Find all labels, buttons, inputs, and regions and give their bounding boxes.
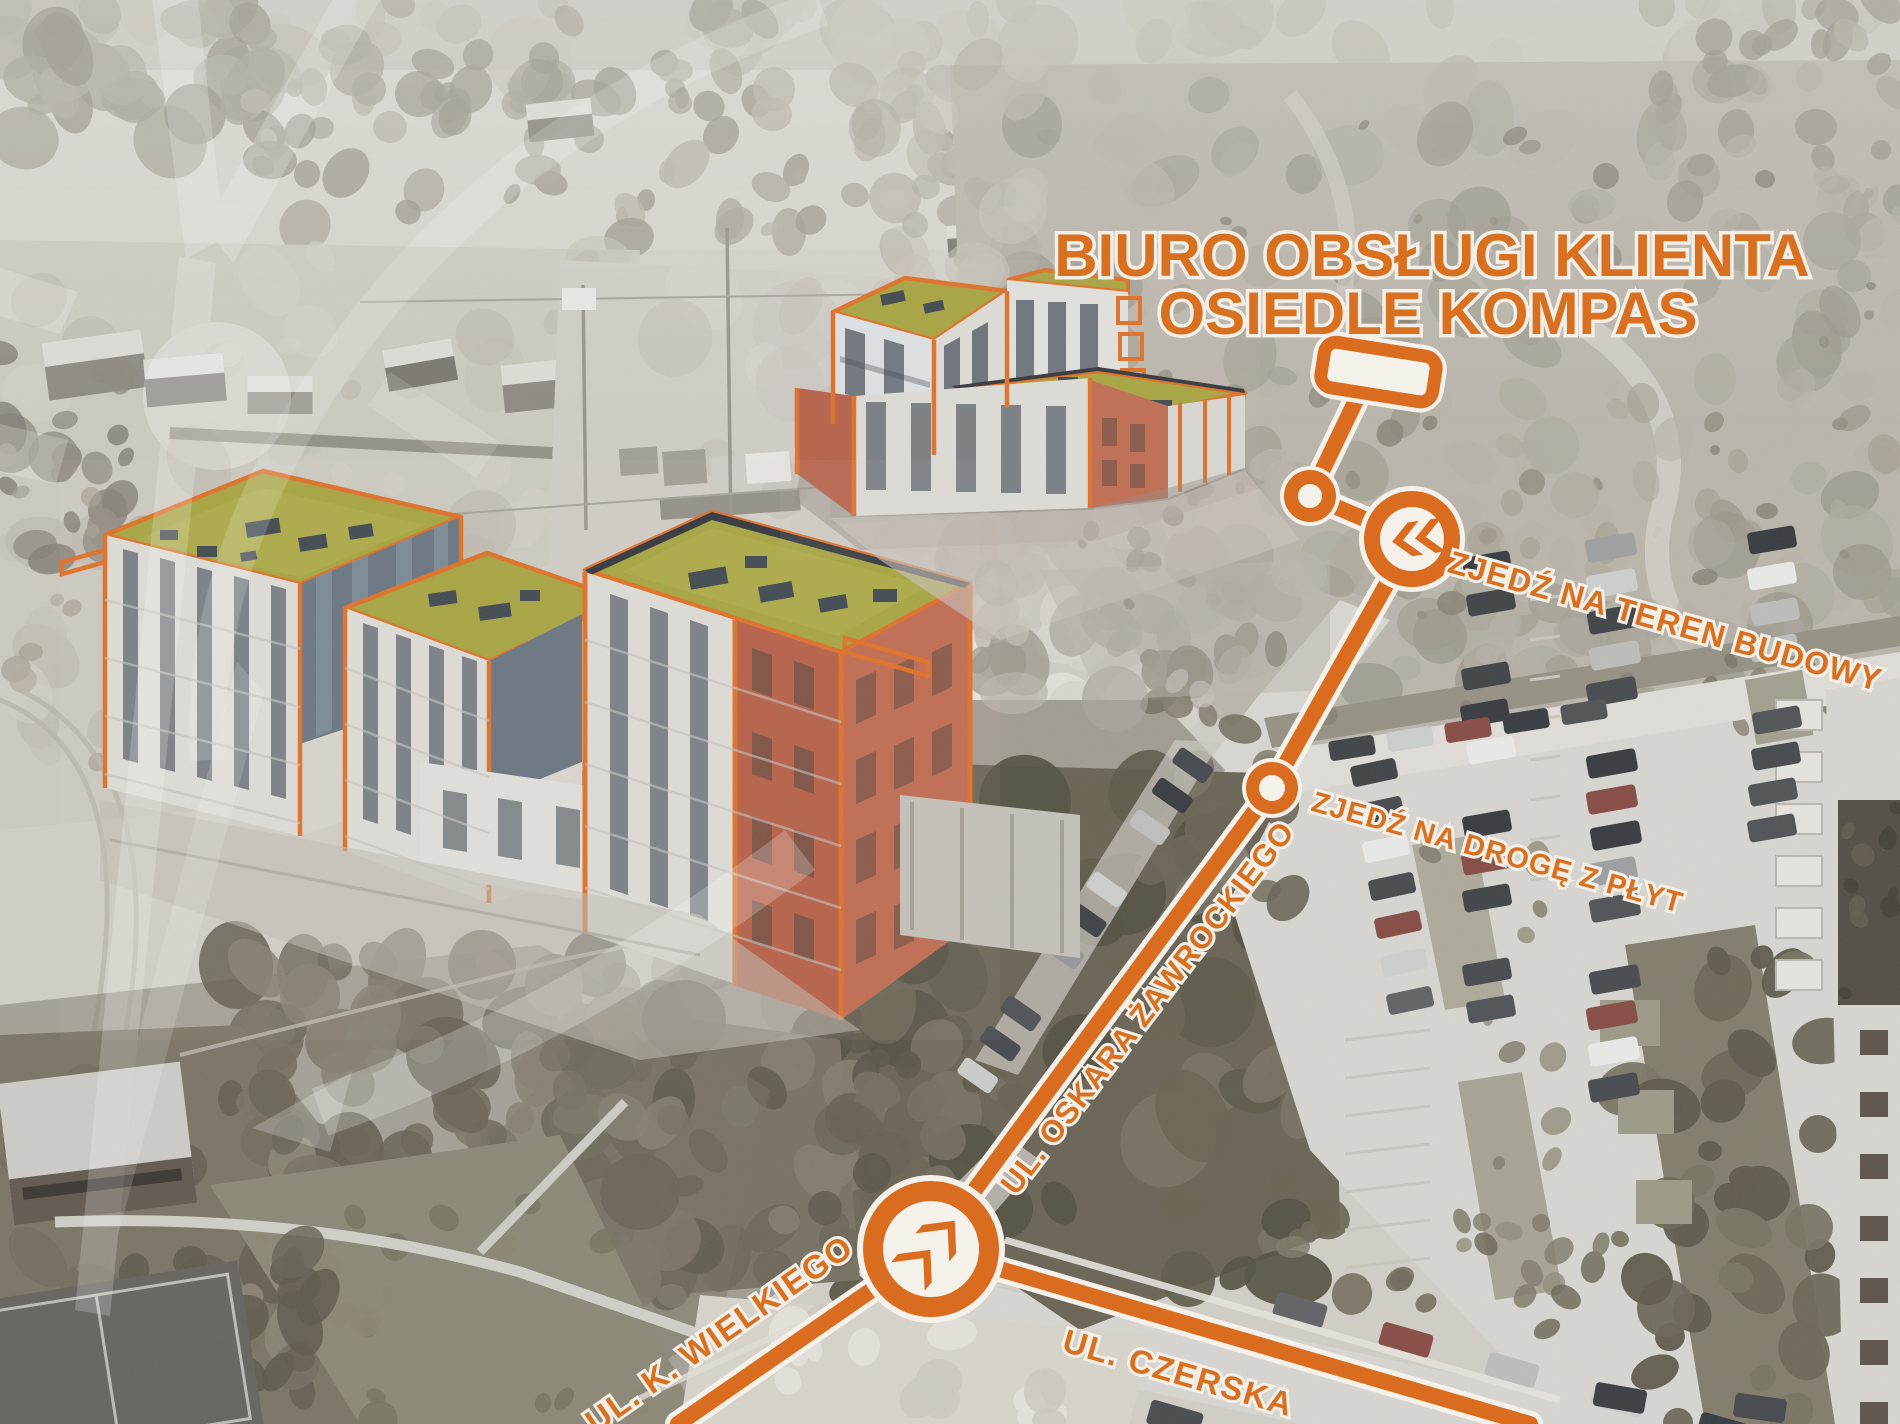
svg-text:BIURO OBSŁUGI KLIENTA: BIURO OBSŁUGI KLIENTA <box>1054 222 1810 289</box>
svg-text:OSIEDLE KOMPAS: OSIEDLE KOMPAS <box>1159 280 1698 347</box>
